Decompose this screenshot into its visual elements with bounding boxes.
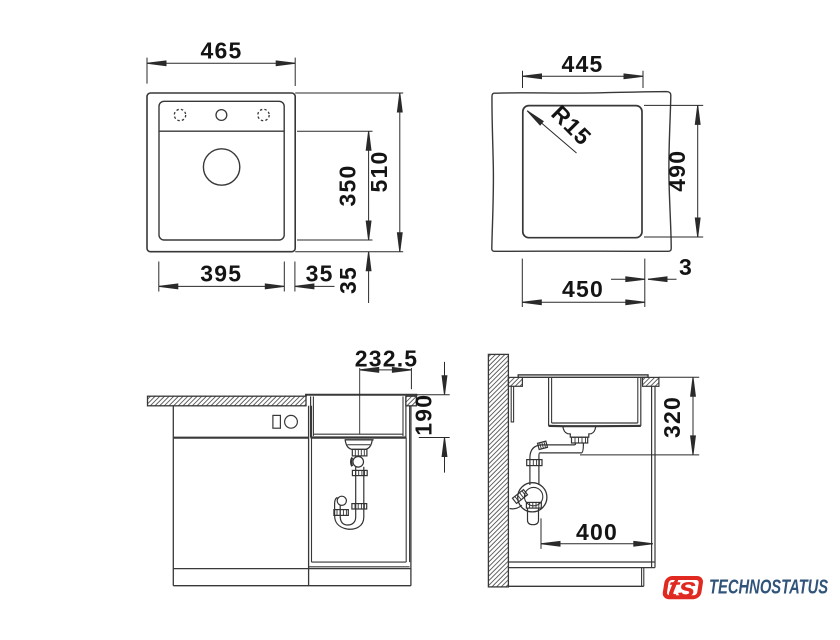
svg-text:350: 350: [335, 165, 361, 207]
svg-text:3: 3: [679, 254, 693, 280]
svg-text:232.5: 232.5: [355, 345, 419, 371]
svg-text:490: 490: [664, 150, 690, 192]
svg-text:190: 190: [411, 394, 437, 436]
svg-text:400: 400: [576, 519, 618, 545]
svg-text:TECHNOSTATUS: TECHNOSTATUS: [709, 575, 828, 598]
svg-text:510: 510: [366, 151, 392, 193]
svg-text:35: 35: [306, 261, 334, 287]
svg-text:395: 395: [200, 261, 242, 287]
svg-text:445: 445: [562, 51, 604, 77]
svg-text:ts: ts: [666, 573, 699, 603]
svg-text:320: 320: [659, 396, 685, 438]
svg-text:35: 35: [335, 266, 361, 294]
svg-text:465: 465: [201, 38, 243, 64]
svg-text:450: 450: [562, 276, 604, 302]
